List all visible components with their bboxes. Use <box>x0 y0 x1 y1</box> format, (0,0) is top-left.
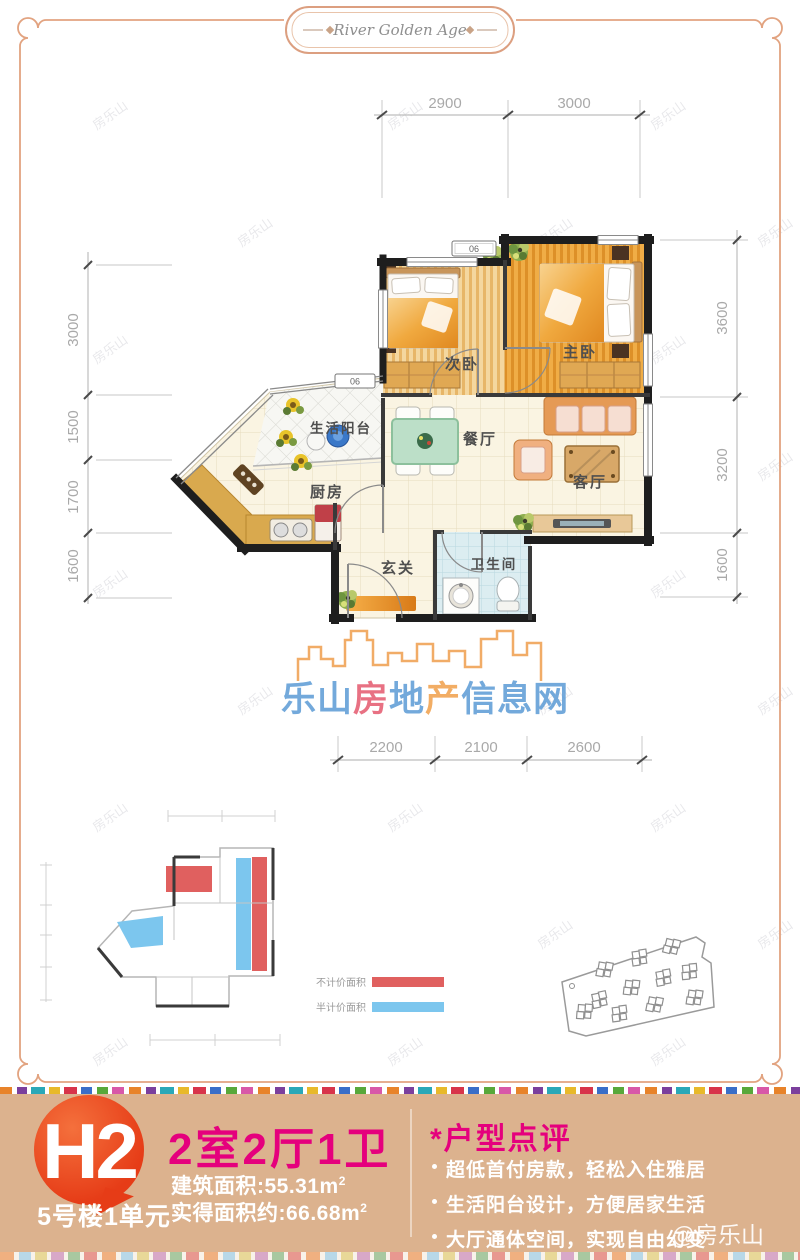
room-label-bathroom: 卫生间 <box>471 556 518 572</box>
dim-left-0: 3000 <box>65 313 82 346</box>
site-logo: 乐山房地产信息网 <box>281 671 569 722</box>
watermark-handle: @房乐山 <box>672 1216 764 1250</box>
dim-left-2: 1700 <box>65 480 82 513</box>
review-title: *户型点评 <box>430 1114 572 1158</box>
confetti-strip-top <box>0 1087 800 1094</box>
site-plan <box>562 937 714 1036</box>
unit-tag-0: 06 <box>469 244 479 254</box>
dim-right-2: 1600 <box>714 548 731 581</box>
logo-part: 房 <box>353 680 389 719</box>
ribbon-badge: River Golden Age <box>286 7 514 53</box>
building-unit-label: 5号楼1单元 <box>24 1197 184 1233</box>
room-label-balcony: 生活阳台 <box>310 420 372 436</box>
legend-swatch-red <box>372 977 444 987</box>
banner-divider <box>410 1109 412 1237</box>
dim-bottom-1: 2100 <box>464 739 497 756</box>
built-area: 建筑面积:55.31m2 <box>171 1170 346 1200</box>
dim-top-1: 3000 <box>557 95 590 112</box>
legend-label-1: 半计价面积 <box>316 1001 366 1014</box>
info-banner: H2 5号楼1单元 2室2厅1卫 建筑面积:55.31m2 实得面积约:66.6… <box>0 1087 800 1260</box>
unit-tag-1: 06 <box>350 377 360 387</box>
legend-label-0: 不计价面积 <box>316 976 366 989</box>
dim-right-0: 3600 <box>714 301 731 334</box>
room-label-living: 客厅 <box>572 473 607 491</box>
dim-right-1: 3200 <box>714 448 731 481</box>
confetti-strip-bottom <box>0 1252 800 1260</box>
layout-label: 2室2厅1卫 <box>168 1113 391 1177</box>
toilet <box>497 577 519 603</box>
main-floorplan: 06 06 次卧 主卧 餐厅 客厅 厨房 生活阳台 玄关 卫生间 <box>176 236 653 621</box>
room-label-bedroom2: 次卧 <box>445 355 479 373</box>
dim-top-0: 2900 <box>428 95 461 112</box>
plan-code: H2 <box>34 1103 144 1199</box>
room-label-entry: 玄关 <box>381 559 415 577</box>
logo-part: 信息网 <box>461 680 569 719</box>
entry-mat <box>346 596 416 611</box>
legend-swatch-blue <box>372 1002 444 1012</box>
area-red-strip <box>252 857 267 971</box>
area-legend: 不计价面积 半计价面积 <box>316 976 444 1014</box>
actual-area: 实得面积约:66.68m2 <box>171 1197 367 1227</box>
dim-left-1: 1500 <box>65 410 82 443</box>
room-label-master: 主卧 <box>563 343 597 361</box>
dim-bottom-0: 2200 <box>369 739 402 756</box>
review-item: 生活阳台设计，方便居家生活 <box>432 1190 706 1217</box>
poster-page: 房乐山房乐山房乐山房乐山房乐山房乐山房乐山房乐山房乐山房乐山房乐山房乐山房乐山房… <box>0 0 800 1260</box>
logo-part: 乐山 <box>281 680 353 719</box>
area-blue-strip <box>236 858 251 970</box>
review-item: 大厅通体空间，实现自由幻变 <box>432 1225 706 1252</box>
logo-part: 地 <box>389 680 425 719</box>
room-label-dining: 餐厅 <box>463 430 497 448</box>
dim-left-3: 1600 <box>65 549 82 582</box>
logo-part: 产 <box>425 680 461 719</box>
dim-bottom-2: 2600 <box>567 739 600 756</box>
room-label-kitchen: 厨房 <box>310 483 344 501</box>
badge-text: River Golden Age <box>332 21 467 39</box>
floorplan-artwork: River Golden Age <box>0 0 800 1260</box>
review-list: 超低首付房款，轻松入住雅居 生活阳台设计，方便居家生活 大厅通体空间，实现自由幻… <box>432 1155 706 1260</box>
area-diagram <box>40 810 280 1046</box>
review-item: 超低首付房款，轻松入住雅居 <box>432 1155 706 1182</box>
